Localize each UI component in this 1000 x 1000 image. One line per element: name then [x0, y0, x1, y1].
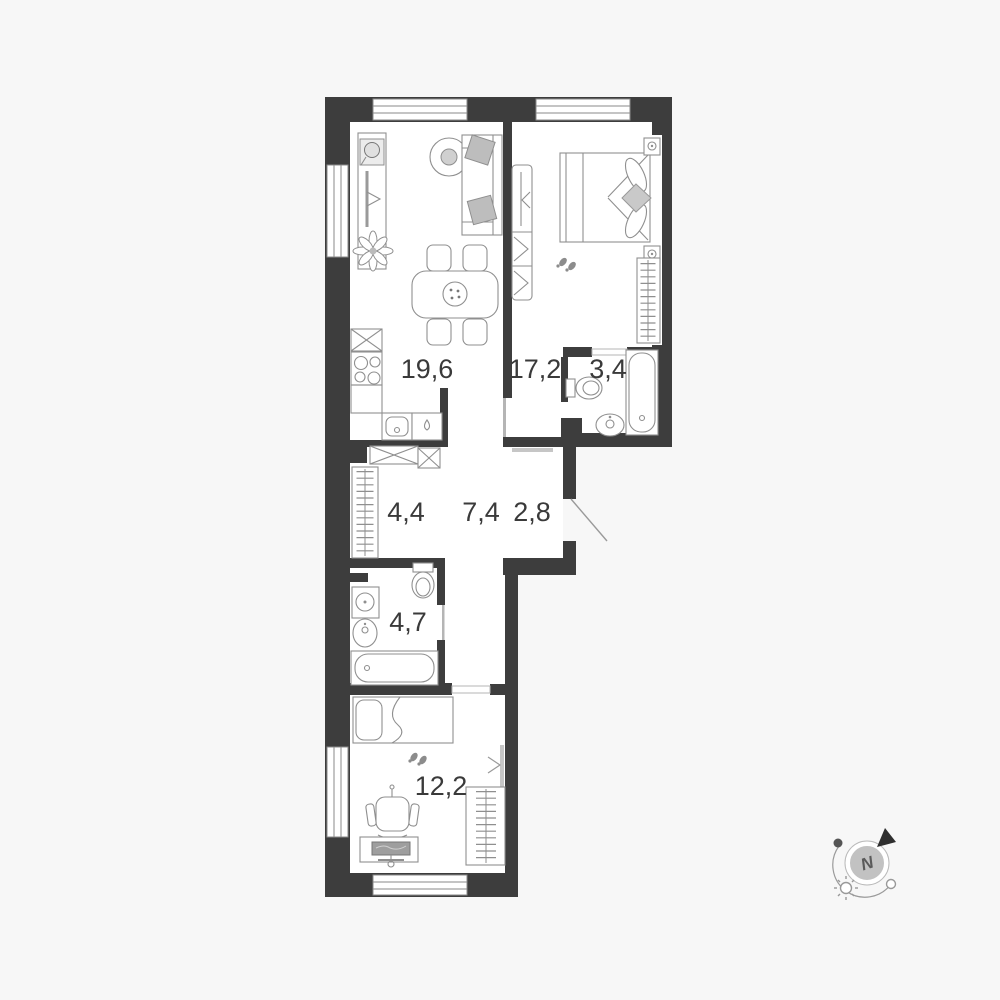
window-left-lower	[327, 747, 348, 837]
wardrobe-rail-icon	[637, 258, 660, 343]
room-area-label-living-kitchen: 19,6	[401, 354, 454, 384]
floor-plan: 19,6 17,2 3,4 4,4 7,4 2,8 4,7 12,2 N	[0, 0, 1000, 1000]
washbasin-icon	[352, 587, 379, 618]
window-bedroom-top	[536, 99, 630, 120]
sink-icon	[353, 619, 377, 647]
room-area-label-bathroom-small: 3,4	[589, 354, 627, 384]
sofa-icon	[462, 135, 502, 235]
single-bed-icon	[353, 697, 453, 743]
stove-icon	[351, 352, 382, 385]
toilet-icon	[412, 563, 434, 598]
room-area-label-hall-wardrobe: 4,4	[387, 497, 425, 527]
compass-north-arrow	[877, 828, 896, 847]
compass-open-dot	[887, 880, 896, 889]
window-bottom	[373, 875, 467, 895]
bedroom-second-threshold	[452, 686, 490, 693]
room-area-label-bedroom-second: 12,2	[415, 771, 468, 801]
sink-icon	[596, 414, 624, 436]
desk-icon	[360, 837, 418, 867]
washing-machine-icon	[418, 448, 440, 468]
bathtub-icon	[351, 651, 438, 685]
compass-dot	[834, 839, 843, 848]
window-living-top	[373, 99, 467, 120]
bathroom-main-door	[437, 605, 445, 640]
room-area-label-bedroom-main: 17,2	[509, 354, 562, 384]
wall-lamp-icon	[644, 138, 660, 155]
double-bed-icon	[560, 153, 651, 242]
kitchen-sink-icon	[382, 413, 412, 440]
room-area-label-entry-hall: 2,8	[513, 497, 551, 527]
cabinet-icon	[370, 446, 418, 464]
wardrobe-rail-icon	[466, 787, 505, 865]
wardrobe-rail-icon	[352, 467, 378, 558]
bedroom-main-threshold	[512, 448, 553, 452]
window-left-upper	[327, 165, 348, 257]
wardrobe-icon	[512, 165, 532, 300]
bedroom-main-door-leaf	[503, 398, 506, 437]
room-area-label-bathroom-main: 4,7	[389, 607, 427, 637]
bathtub-icon	[626, 350, 658, 435]
entry-door-swing	[571, 499, 607, 541]
dishwasher-icon	[412, 413, 442, 440]
compass: N	[833, 828, 896, 900]
room-area-label-corridor: 7,4	[462, 497, 500, 527]
bedroom-second-door-leaf	[500, 745, 504, 789]
